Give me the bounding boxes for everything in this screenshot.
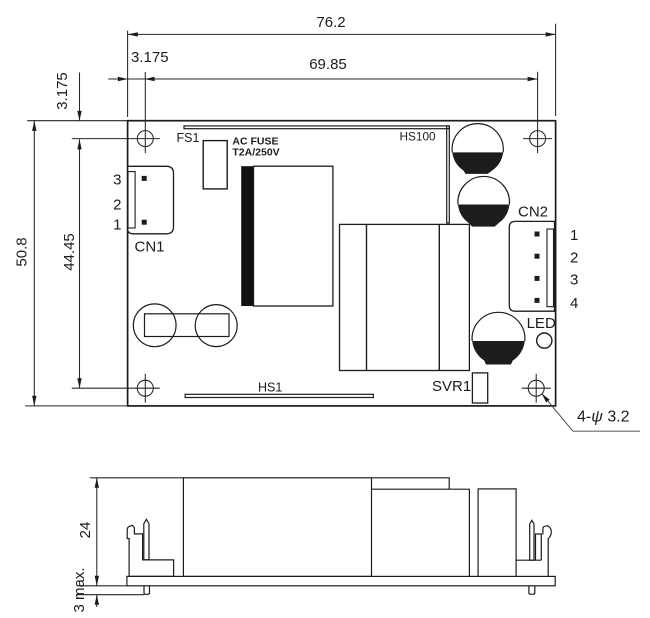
svg-text:CN2: CN2 bbox=[518, 203, 548, 220]
svg-text:76.2: 76.2 bbox=[316, 14, 345, 31]
svg-text:2: 2 bbox=[113, 197, 121, 214]
svg-text:3 max.: 3 max. bbox=[71, 567, 88, 612]
svg-text:2: 2 bbox=[570, 249, 578, 266]
svg-text:SVR1: SVR1 bbox=[432, 378, 471, 395]
svg-text:3: 3 bbox=[113, 172, 121, 189]
svg-text:44.45: 44.45 bbox=[61, 233, 78, 271]
svg-text:3.175: 3.175 bbox=[131, 49, 169, 66]
svg-text:HS100: HS100 bbox=[400, 130, 437, 144]
svg-text:69.85: 69.85 bbox=[309, 56, 347, 73]
svg-text:4: 4 bbox=[570, 295, 578, 312]
svg-text:24: 24 bbox=[77, 522, 94, 539]
svg-text:FS1: FS1 bbox=[177, 131, 200, 145]
svg-text:50.8: 50.8 bbox=[14, 237, 31, 266]
svg-text:4-ψ 3.2: 4-ψ 3.2 bbox=[577, 409, 630, 426]
svg-text:3.175: 3.175 bbox=[54, 72, 71, 110]
svg-text:CN1: CN1 bbox=[135, 239, 165, 256]
svg-text:T2A/250V: T2A/250V bbox=[232, 147, 279, 159]
svg-text:3: 3 bbox=[570, 272, 578, 289]
svg-text:HS1: HS1 bbox=[258, 381, 282, 395]
svg-text:1: 1 bbox=[570, 227, 578, 244]
svg-text:1: 1 bbox=[113, 217, 121, 234]
svg-text:LED: LED bbox=[527, 315, 556, 332]
